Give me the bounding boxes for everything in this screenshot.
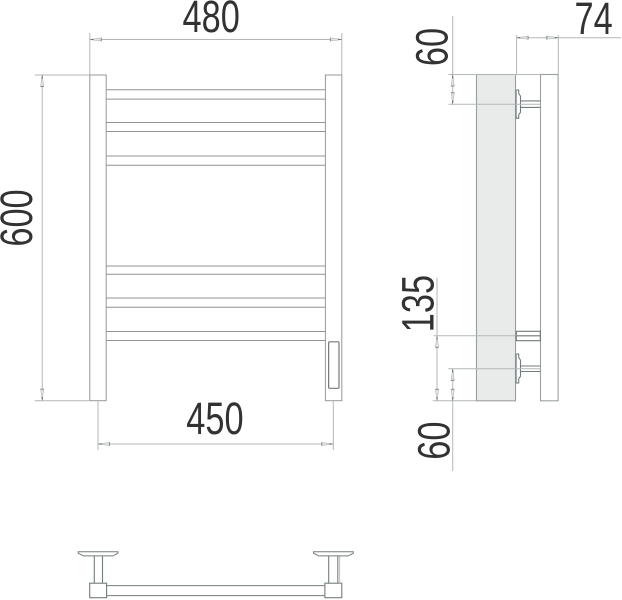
svg-text:60: 60 — [407, 28, 458, 66]
svg-text:600: 600 — [0, 189, 42, 246]
svg-text:74: 74 — [575, 0, 613, 44]
svg-text:450: 450 — [186, 393, 243, 444]
svg-text:60: 60 — [409, 422, 460, 460]
svg-text:135: 135 — [393, 275, 444, 332]
svg-text:480: 480 — [183, 0, 240, 42]
